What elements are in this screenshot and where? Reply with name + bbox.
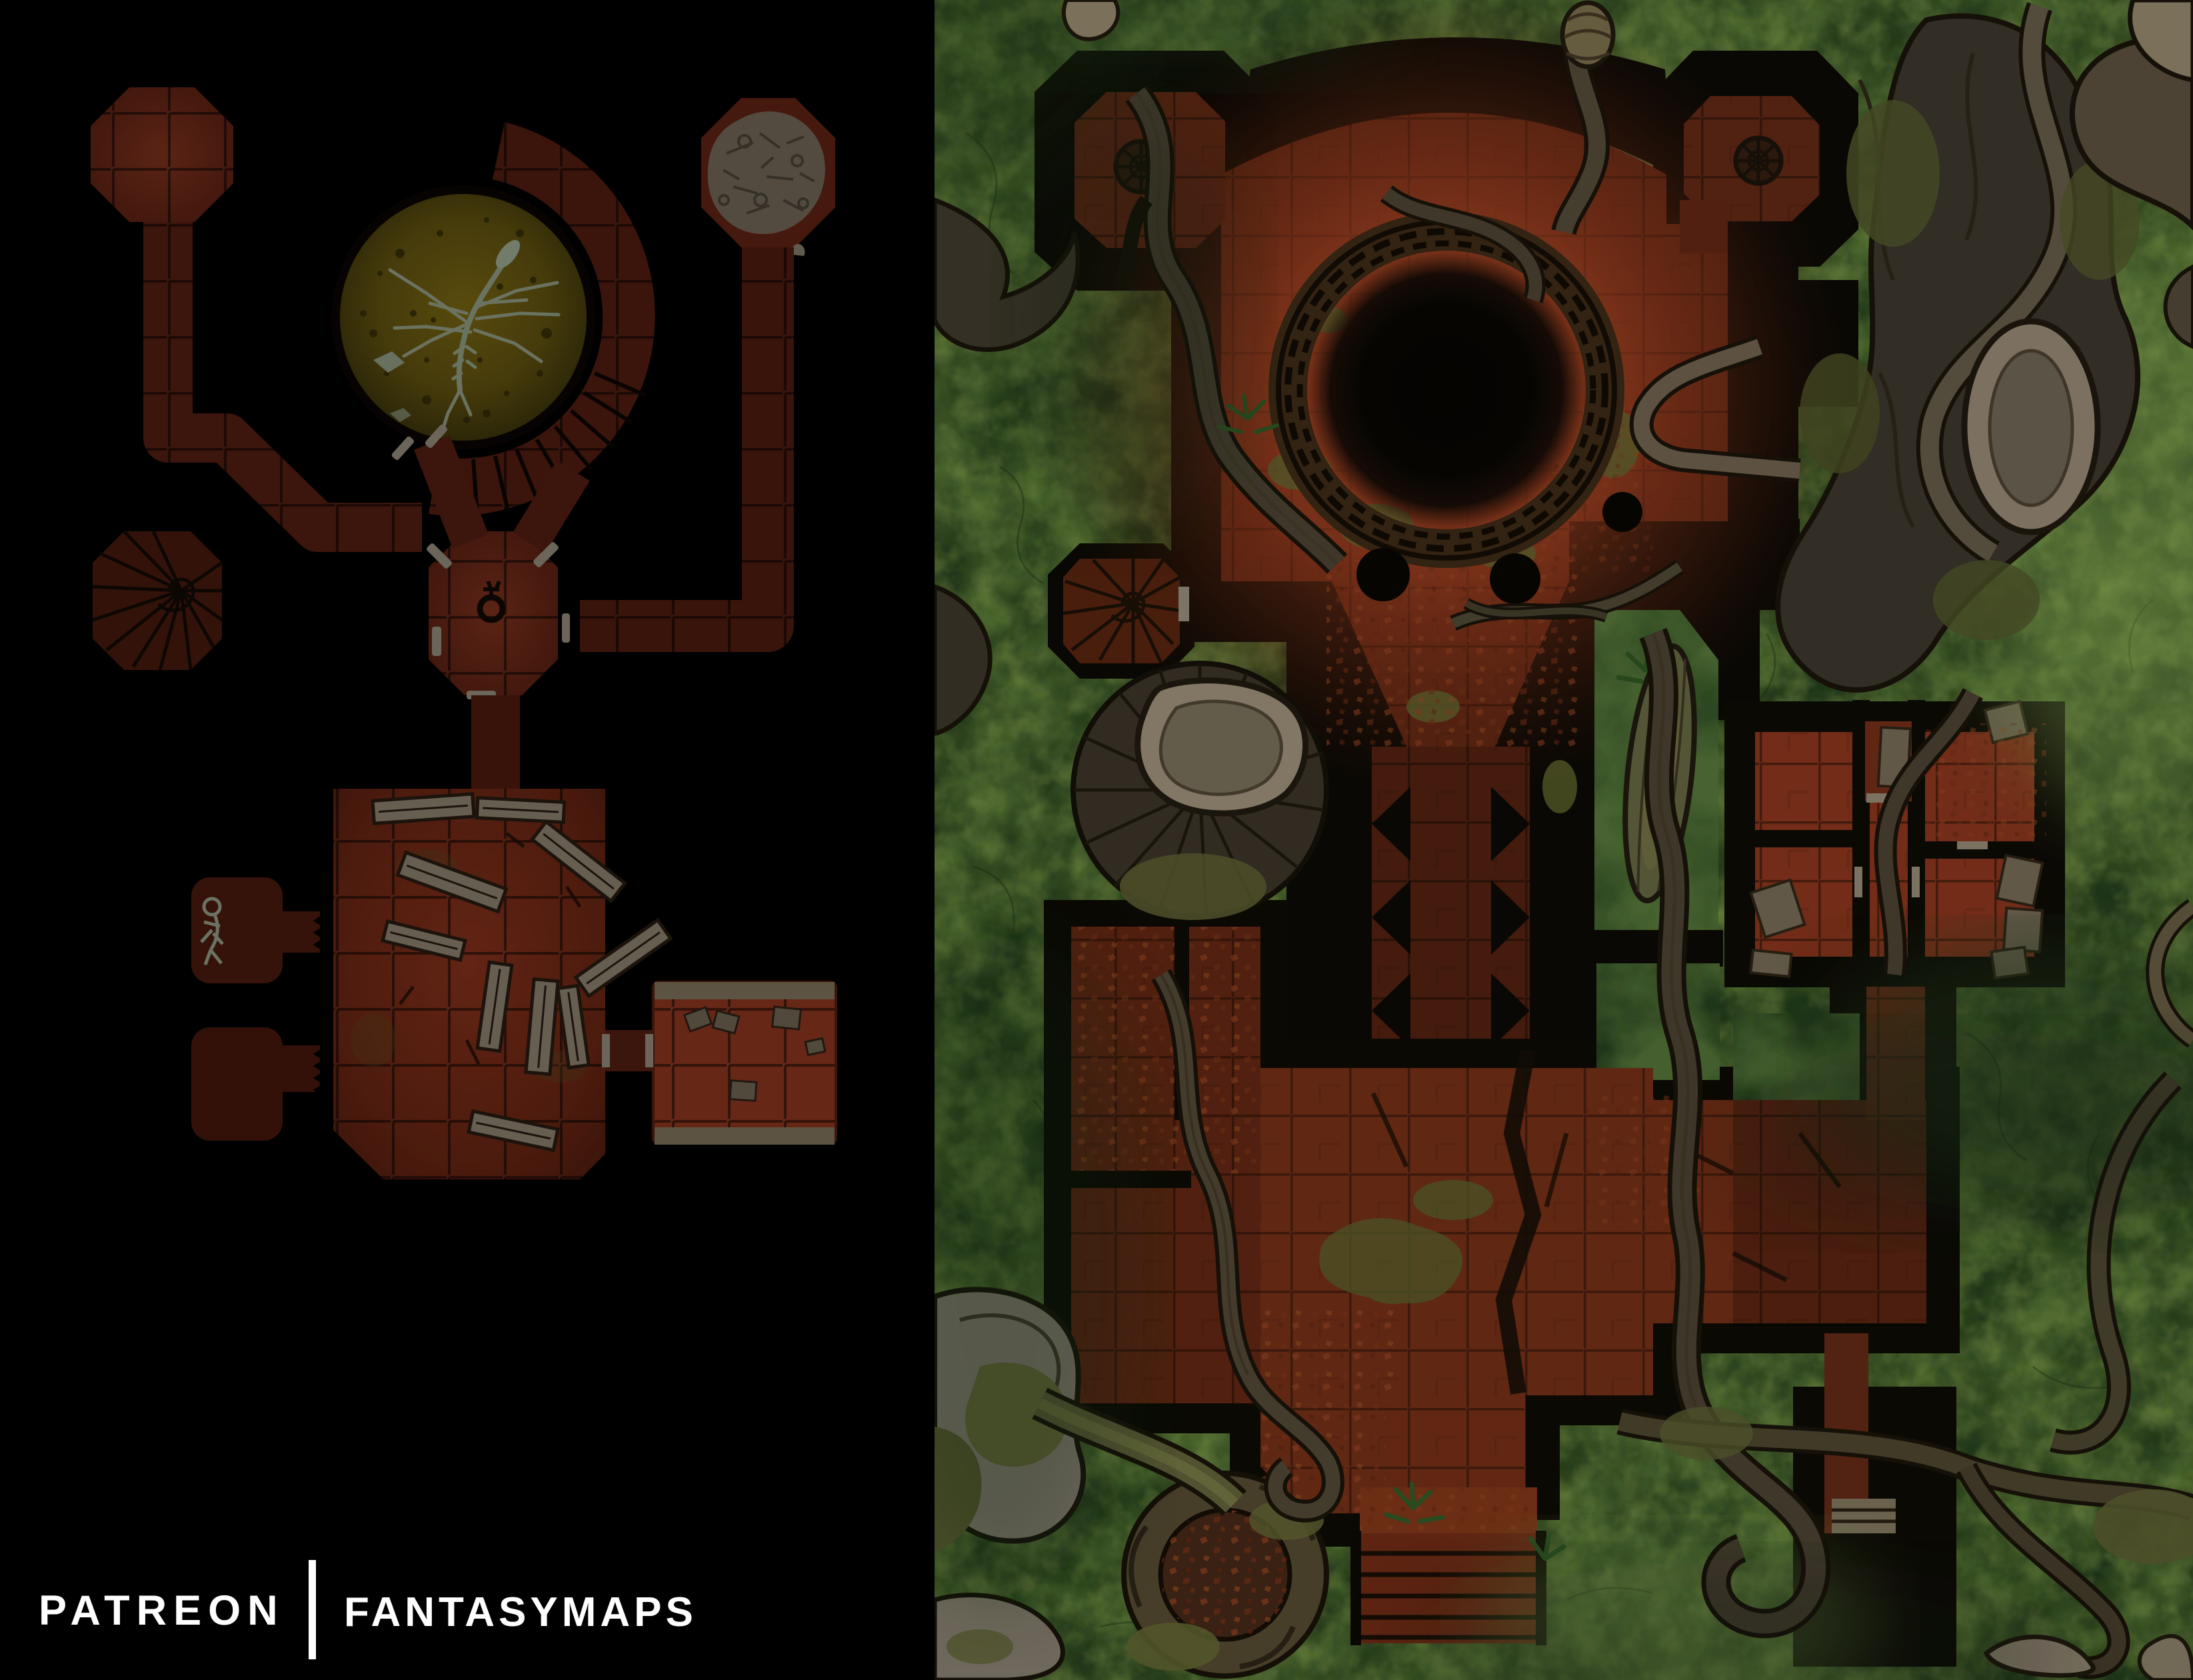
svg-text:FANTASYMAPS: FANTASYMAPS	[344, 1589, 697, 1635]
svg-text:PATREON: PATREON	[39, 1587, 285, 1634]
